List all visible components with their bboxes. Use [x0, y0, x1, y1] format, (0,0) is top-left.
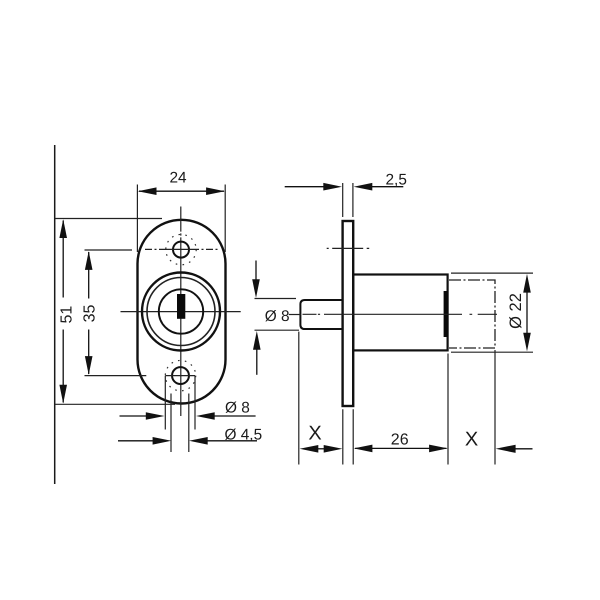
svg-text:26: 26	[391, 431, 409, 448]
svg-text:24: 24	[169, 169, 187, 186]
svg-text:35: 35	[81, 305, 98, 323]
svg-text:X: X	[465, 428, 478, 450]
svg-text:Ø 8: Ø 8	[265, 308, 290, 325]
svg-text:51: 51	[59, 306, 76, 324]
svg-text:2,5: 2,5	[386, 171, 407, 188]
svg-text:Ø 4,5: Ø 4,5	[225, 426, 263, 443]
svg-text:Ø 8: Ø 8	[225, 400, 250, 417]
svg-text:X: X	[308, 423, 321, 445]
svg-text:Ø 22: Ø 22	[507, 293, 525, 329]
